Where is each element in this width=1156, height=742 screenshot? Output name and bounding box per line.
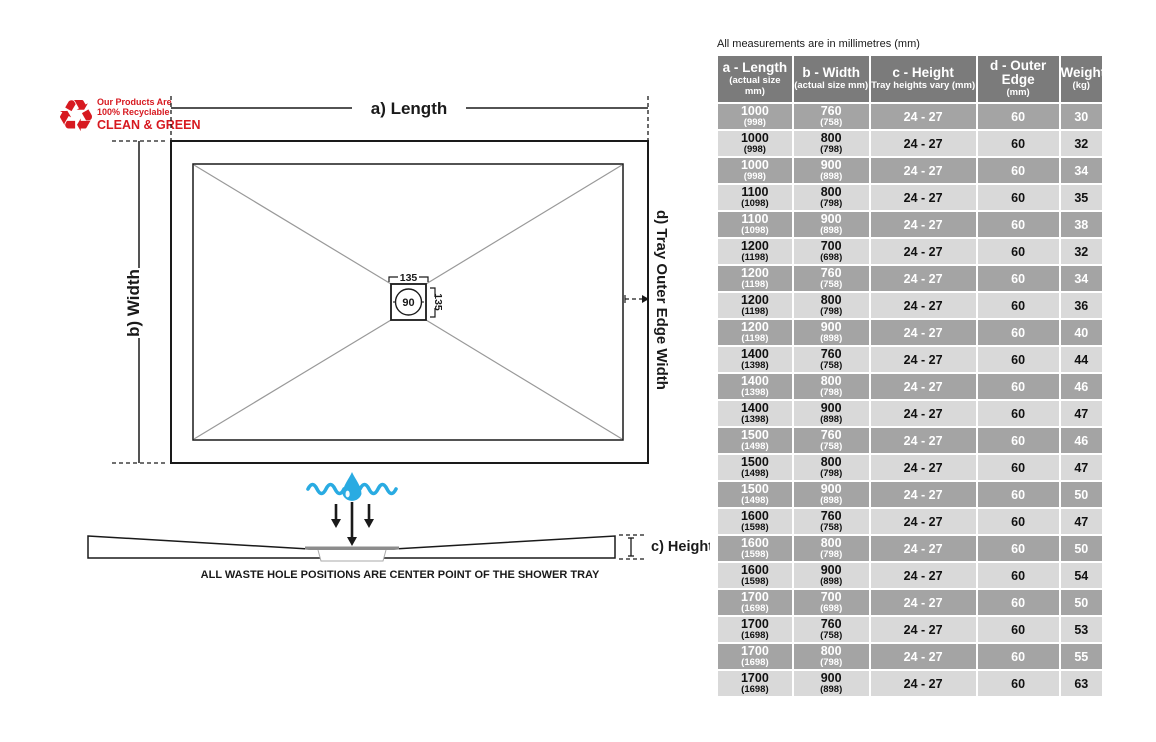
- cell-height: 24 - 27: [871, 266, 976, 291]
- recycle-line1: Our Products Are: [97, 97, 172, 107]
- cell-weight: 40: [1061, 320, 1102, 345]
- recycle-badge: ♻ Our Products Are 100% Recyclable CLEAN…: [56, 92, 200, 141]
- table-row: 1100 (1098) 800 (798) 24 - 27 60 35: [718, 185, 1102, 210]
- column-header: b - Width (actual size mm): [794, 56, 869, 102]
- table-body: 1000 (998) 760 (758) 24 - 27 60 30 1000 …: [718, 104, 1102, 696]
- cell-length: 1700 (1698): [718, 671, 792, 696]
- column-subtitle: (actual size mm): [794, 80, 869, 91]
- cell-length: 1700 (1698): [718, 617, 792, 642]
- cell-outer-edge: 60: [978, 158, 1059, 183]
- table-row: 1400 (1398) 800 (798) 24 - 27 60 46: [718, 374, 1102, 399]
- cell-length: 1000 (998): [718, 131, 792, 156]
- column-subtitle: (kg): [1061, 80, 1102, 91]
- table-row: 1700 (1698) 800 (798) 24 - 27 60 55: [718, 644, 1102, 669]
- cell-height: 24 - 27: [871, 536, 976, 561]
- cell-length: 1200 (1198): [718, 320, 792, 345]
- cell-length: 1600 (1598): [718, 536, 792, 561]
- cell-width: 700 (698): [794, 239, 869, 264]
- height-dimension: c) Height: [619, 535, 710, 559]
- cell-length: 1500 (1498): [718, 428, 792, 453]
- cell-length: 1700 (1698): [718, 644, 792, 669]
- cell-height: 24 - 27: [871, 293, 976, 318]
- table-row: 1200 (1198) 760 (758) 24 - 27 60 34: [718, 266, 1102, 291]
- cell-width: 760 (758): [794, 617, 869, 642]
- table-row: 1200 (1198) 800 (798) 24 - 27 60 36: [718, 293, 1102, 318]
- length-dimension: a) Length: [171, 96, 648, 140]
- cell-height: 24 - 27: [871, 455, 976, 480]
- cell-weight: 54: [1061, 563, 1102, 588]
- cell-width: 800 (798): [794, 131, 869, 156]
- size-table-section: All measurements are in millimetres (mm)…: [716, 38, 1104, 698]
- cell-height: 24 - 27: [871, 158, 976, 183]
- cell-length: 1000 (998): [718, 158, 792, 183]
- cell-height: 24 - 27: [871, 509, 976, 534]
- cell-outer-edge: 60: [978, 482, 1059, 507]
- cell-width: 900 (898): [794, 212, 869, 237]
- height-label: c) Height: [651, 539, 710, 555]
- cell-height: 24 - 27: [871, 239, 976, 264]
- cell-weight: 36: [1061, 293, 1102, 318]
- cell-height: 24 - 27: [871, 185, 976, 210]
- water-drop-icon: [308, 472, 396, 501]
- cell-height: 24 - 27: [871, 374, 976, 399]
- cell-width: 760 (758): [794, 104, 869, 129]
- cell-length: 1600 (1598): [718, 509, 792, 534]
- cell-height: 24 - 27: [871, 428, 976, 453]
- cell-weight: 34: [1061, 158, 1102, 183]
- table-row: 1600 (1598) 760 (758) 24 - 27 60 47: [718, 509, 1102, 534]
- table-row: 1400 (1398) 900 (898) 24 - 27 60 47: [718, 401, 1102, 426]
- table-row: 1000 (998) 800 (798) 24 - 27 60 32: [718, 131, 1102, 156]
- cell-outer-edge: 60: [978, 617, 1059, 642]
- cell-weight: 47: [1061, 509, 1102, 534]
- column-header: c - Height Tray heights vary (mm): [871, 56, 976, 102]
- cell-width: 800 (798): [794, 536, 869, 561]
- length-label: a) Length: [371, 99, 448, 118]
- cell-length: 1000 (998): [718, 104, 792, 129]
- table-row: 1500 (1498) 900 (898) 24 - 27 60 50: [718, 482, 1102, 507]
- cell-height: 24 - 27: [871, 563, 976, 588]
- cell-width: 900 (898): [794, 320, 869, 345]
- column-title: Weight: [1061, 66, 1102, 80]
- outer-edge-label: d) Tray Outer Edge Width: [653, 210, 670, 390]
- table-row: 1700 (1698) 900 (898) 24 - 27 60 63: [718, 671, 1102, 696]
- cell-height: 24 - 27: [871, 644, 976, 669]
- cell-outer-edge: 60: [978, 644, 1059, 669]
- cell-weight: 38: [1061, 212, 1102, 237]
- cell-length: 1500 (1498): [718, 482, 792, 507]
- size-table: a - Length (actual size mm) b - Width (a…: [716, 54, 1104, 698]
- cell-length: 1100 (1098): [718, 212, 792, 237]
- cell-width: 900 (898): [794, 671, 869, 696]
- table-row: 1400 (1398) 760 (758) 24 - 27 60 44: [718, 347, 1102, 372]
- cell-width: 800 (798): [794, 455, 869, 480]
- recycle-line2: 100% Recyclable: [97, 107, 170, 117]
- cell-width: 900 (898): [794, 158, 869, 183]
- cell-weight: 35: [1061, 185, 1102, 210]
- table-row: 1600 (1598) 800 (798) 24 - 27 60 50: [718, 536, 1102, 561]
- cell-weight: 46: [1061, 428, 1102, 453]
- table-header-row: a - Length (actual size mm) b - Width (a…: [718, 56, 1102, 102]
- cell-outer-edge: 60: [978, 320, 1059, 345]
- cell-width: 800 (798): [794, 293, 869, 318]
- column-subtitle: (actual size mm): [718, 75, 792, 97]
- spec-sheet-page: ♻ Our Products Are 100% Recyclable CLEAN…: [0, 0, 1156, 742]
- cell-width: 900 (898): [794, 563, 869, 588]
- cell-weight: 44: [1061, 347, 1102, 372]
- cell-outer-edge: 60: [978, 212, 1059, 237]
- cell-height: 24 - 27: [871, 401, 976, 426]
- recycle-icon: ♻: [56, 92, 95, 141]
- waste-hole: 90: [391, 284, 426, 320]
- cell-length: 1100 (1098): [718, 185, 792, 210]
- cell-outer-edge: 60: [978, 590, 1059, 615]
- cell-width: 900 (898): [794, 401, 869, 426]
- table-row: 1500 (1498) 760 (758) 24 - 27 60 46: [718, 428, 1102, 453]
- cell-weight: 34: [1061, 266, 1102, 291]
- cell-weight: 50: [1061, 536, 1102, 561]
- table-row: 1200 (1198) 900 (898) 24 - 27 60 40: [718, 320, 1102, 345]
- cell-height: 24 - 27: [871, 590, 976, 615]
- column-title: a - Length: [718, 61, 792, 75]
- table-row: 1000 (998) 900 (898) 24 - 27 60 34: [718, 158, 1102, 183]
- cell-width: 760 (758): [794, 347, 869, 372]
- waste-height-label: 135: [432, 293, 444, 311]
- recycle-line3: CLEAN & GREEN: [97, 118, 200, 132]
- cell-outer-edge: 60: [978, 185, 1059, 210]
- cell-weight: 50: [1061, 482, 1102, 507]
- cell-height: 24 - 27: [871, 212, 976, 237]
- cell-height: 24 - 27: [871, 617, 976, 642]
- tray-top-view: 90 135 135: [171, 141, 648, 463]
- cell-outer-edge: 60: [978, 104, 1059, 129]
- cell-length: 1200 (1198): [718, 239, 792, 264]
- cell-width: 700 (698): [794, 590, 869, 615]
- table-row: 1100 (1098) 900 (898) 24 - 27 60 38: [718, 212, 1102, 237]
- cell-length: 1200 (1198): [718, 266, 792, 291]
- cell-width: 760 (758): [794, 266, 869, 291]
- cell-length: 1400 (1398): [718, 401, 792, 426]
- column-subtitle: Tray heights vary (mm): [871, 80, 976, 91]
- table-row: 1700 (1698) 700 (698) 24 - 27 60 50: [718, 590, 1102, 615]
- column-subtitle: (mm): [978, 87, 1059, 98]
- cell-width: 900 (898): [794, 482, 869, 507]
- cell-length: 1400 (1398): [718, 347, 792, 372]
- cell-outer-edge: 60: [978, 374, 1059, 399]
- width-dimension: b) Width: [112, 141, 167, 463]
- cell-height: 24 - 27: [871, 320, 976, 345]
- cell-height: 24 - 27: [871, 131, 976, 156]
- cell-width: 800 (798): [794, 374, 869, 399]
- cell-outer-edge: 60: [978, 239, 1059, 264]
- cell-weight: 55: [1061, 644, 1102, 669]
- cell-outer-edge: 60: [978, 671, 1059, 696]
- cell-weight: 32: [1061, 239, 1102, 264]
- cell-length: 1500 (1498): [718, 455, 792, 480]
- cell-weight: 53: [1061, 617, 1102, 642]
- column-header: d - Outer Edge (mm): [978, 56, 1059, 102]
- waste-width-label: 135: [400, 272, 418, 284]
- cell-weight: 32: [1061, 131, 1102, 156]
- column-header: a - Length (actual size mm): [718, 56, 792, 102]
- shower-tray-diagram: ♻ Our Products Are 100% Recyclable CLEAN…: [0, 0, 710, 742]
- flow-arrows: [331, 502, 374, 546]
- cell-length: 1700 (1698): [718, 590, 792, 615]
- cell-length: 1400 (1398): [718, 374, 792, 399]
- cell-weight: 30: [1061, 104, 1102, 129]
- column-header: Weight (kg): [1061, 56, 1102, 102]
- cell-height: 24 - 27: [871, 347, 976, 372]
- table-row: 1200 (1198) 700 (698) 24 - 27 60 32: [718, 239, 1102, 264]
- table-row: 1600 (1598) 900 (898) 24 - 27 60 54: [718, 563, 1102, 588]
- table-row: 1000 (998) 760 (758) 24 - 27 60 30: [718, 104, 1102, 129]
- cell-outer-edge: 60: [978, 131, 1059, 156]
- cell-outer-edge: 60: [978, 401, 1059, 426]
- cell-width: 760 (758): [794, 428, 869, 453]
- cell-outer-edge: 60: [978, 536, 1059, 561]
- cell-outer-edge: 60: [978, 509, 1059, 534]
- cell-width: 800 (798): [794, 644, 869, 669]
- cell-length: 1200 (1198): [718, 293, 792, 318]
- cell-weight: 50: [1061, 590, 1102, 615]
- column-title: d - Outer Edge: [978, 59, 1059, 87]
- cell-height: 24 - 27: [871, 482, 976, 507]
- cell-height: 24 - 27: [871, 671, 976, 696]
- cell-weight: 47: [1061, 401, 1102, 426]
- cell-weight: 63: [1061, 671, 1102, 696]
- cell-outer-edge: 60: [978, 455, 1059, 480]
- cell-weight: 46: [1061, 374, 1102, 399]
- waste-hole-caption: ALL WASTE HOLE POSITIONS ARE CENTER POIN…: [201, 569, 600, 581]
- waste-diameter-label: 90: [402, 297, 414, 309]
- cell-outer-edge: 60: [978, 266, 1059, 291]
- units-note: All measurements are in millimetres (mm): [717, 38, 1104, 50]
- cell-height: 24 - 27: [871, 104, 976, 129]
- cell-outer-edge: 60: [978, 428, 1059, 453]
- cell-width: 760 (758): [794, 509, 869, 534]
- column-title: b - Width: [794, 66, 869, 80]
- table-row: 1500 (1498) 800 (798) 24 - 27 60 47: [718, 455, 1102, 480]
- column-title: c - Height: [871, 66, 976, 80]
- cell-outer-edge: 60: [978, 563, 1059, 588]
- cell-outer-edge: 60: [978, 347, 1059, 372]
- cell-width: 800 (798): [794, 185, 869, 210]
- table-row: 1700 (1698) 760 (758) 24 - 27 60 53: [718, 617, 1102, 642]
- width-label: b) Width: [124, 269, 143, 337]
- cell-outer-edge: 60: [978, 293, 1059, 318]
- cell-weight: 47: [1061, 455, 1102, 480]
- cell-length: 1600 (1598): [718, 563, 792, 588]
